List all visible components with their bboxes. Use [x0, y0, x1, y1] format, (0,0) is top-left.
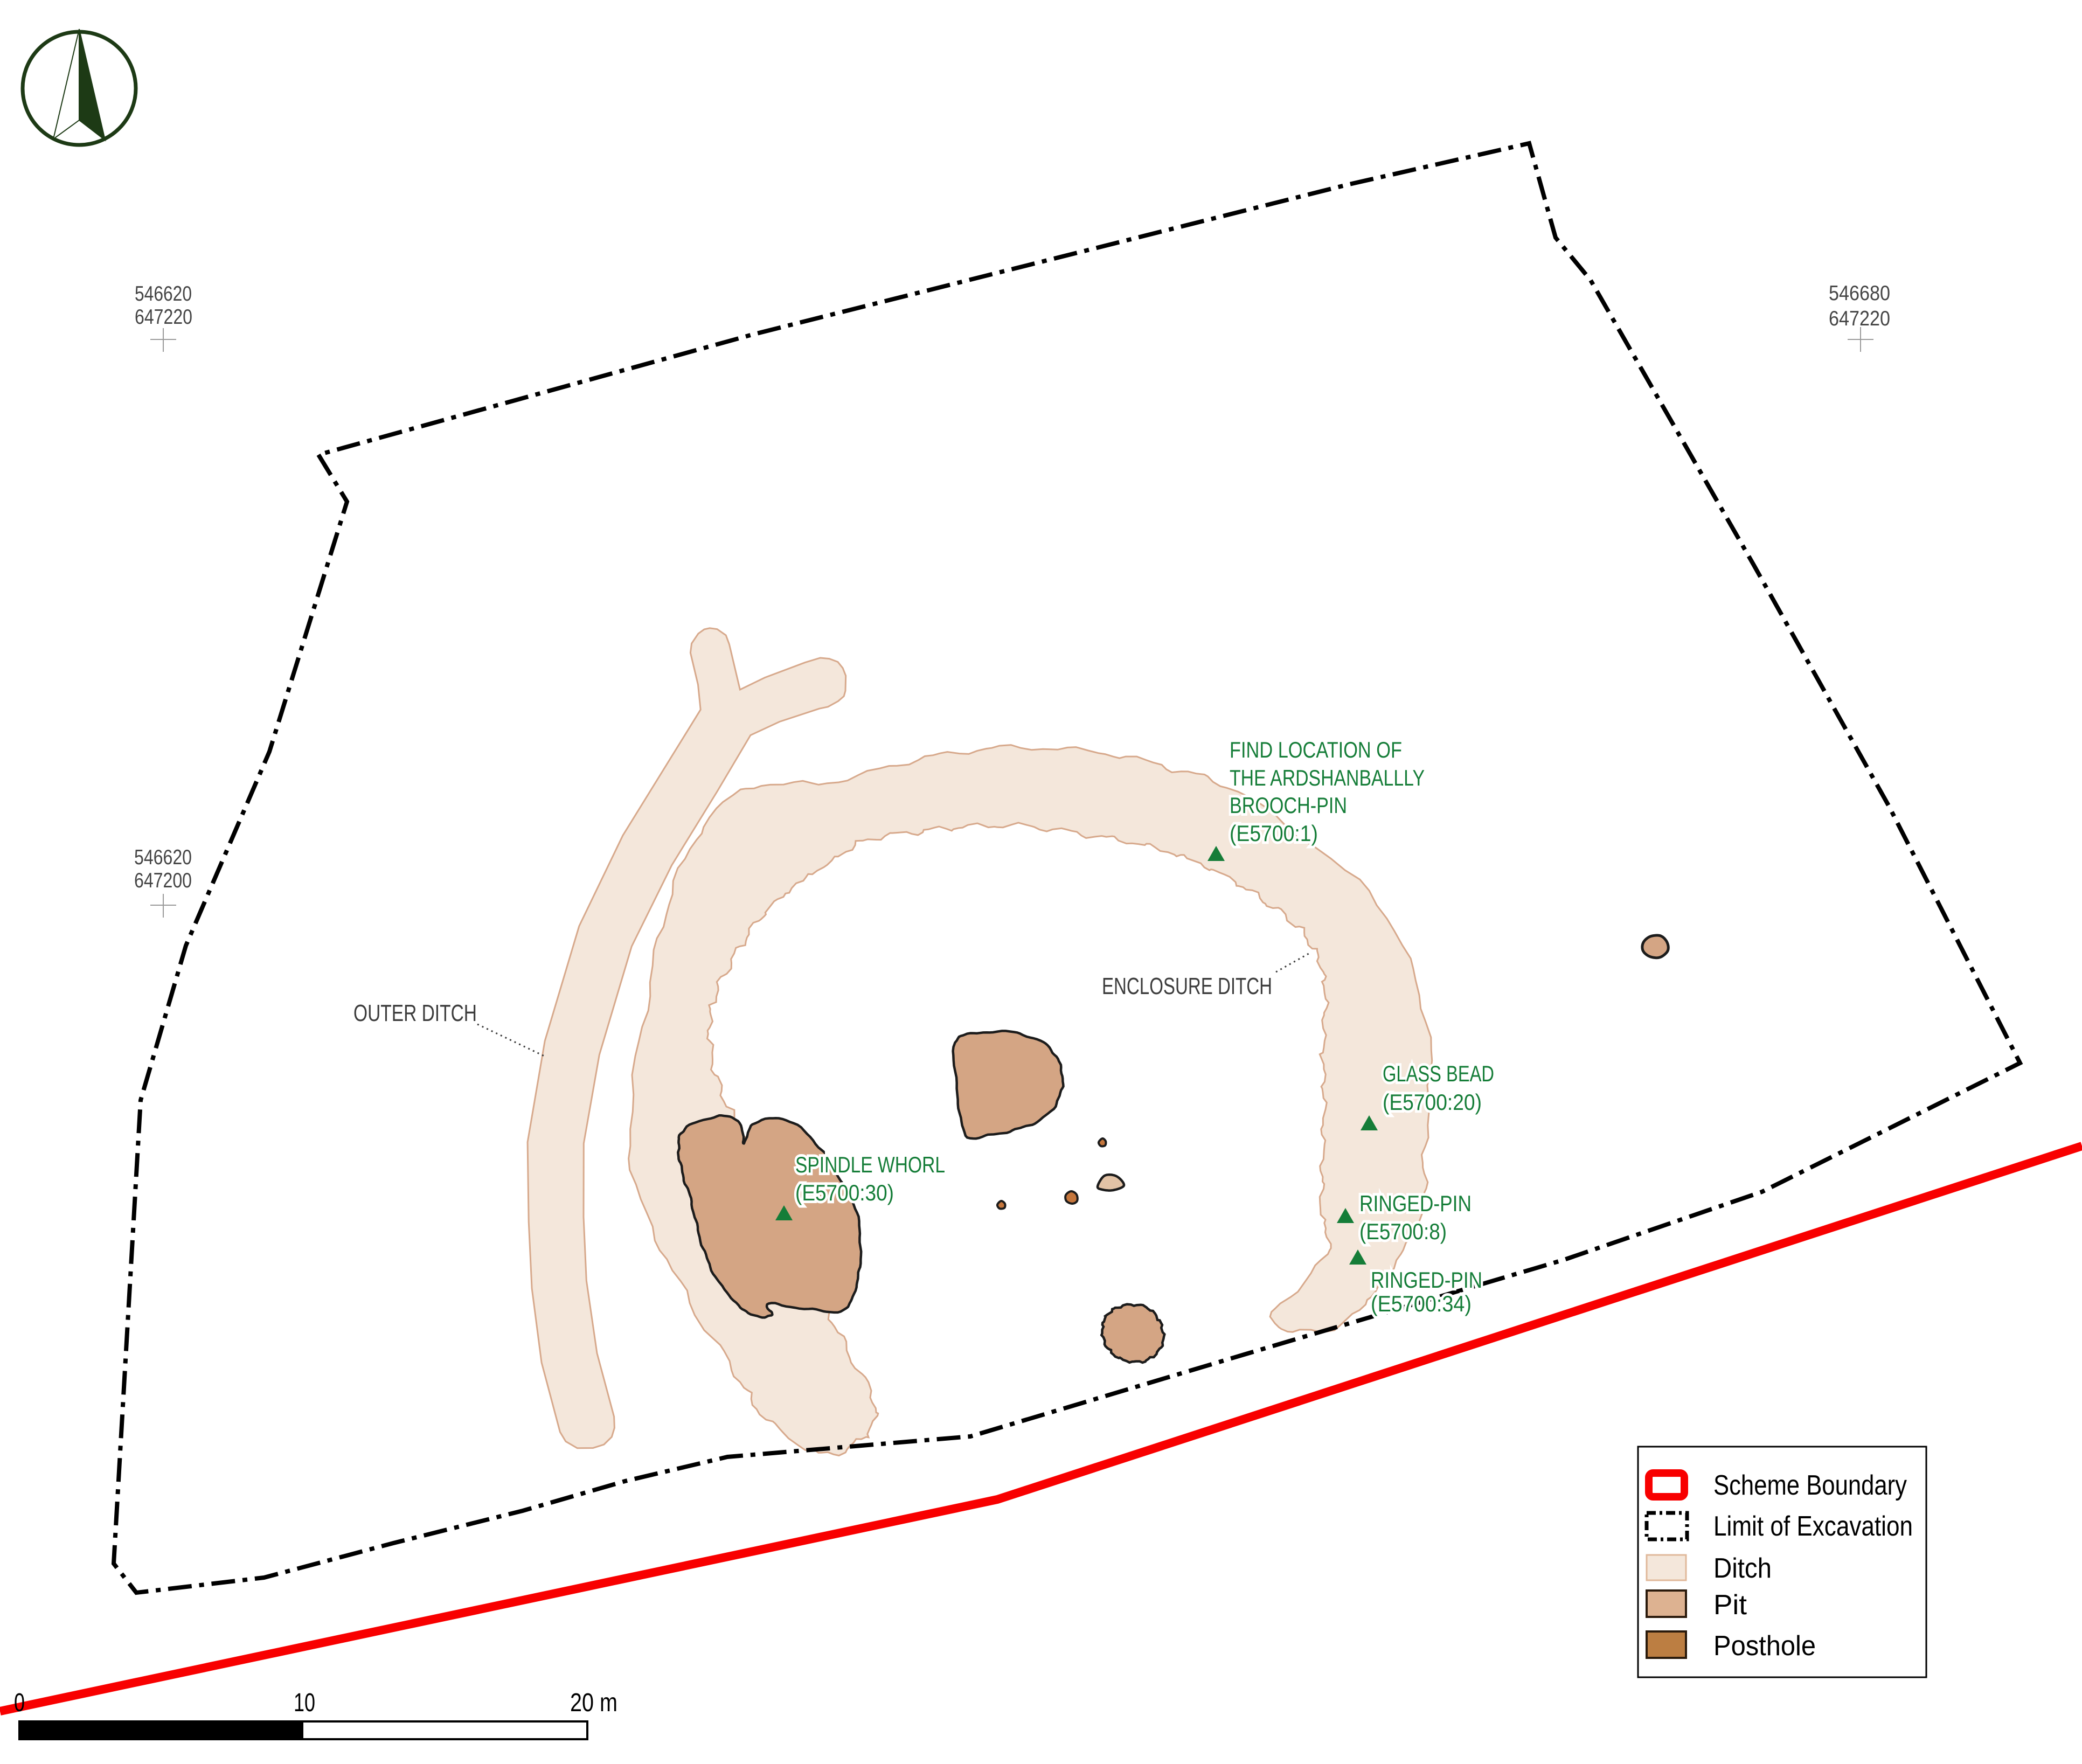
svg-text:(E5700:30): (E5700:30) [795, 1180, 894, 1205]
svg-text:647220: 647220 [1829, 307, 1890, 330]
svg-text:GLASS BEAD: GLASS BEAD [1383, 1061, 1494, 1086]
svg-text:FIND LOCATION OF: FIND LOCATION OF [1230, 737, 1402, 762]
svg-text:Scheme Boundary: Scheme Boundary [1713, 1470, 1907, 1501]
svg-text:Limit of Excavation: Limit of Excavation [1713, 1511, 1913, 1542]
svg-text:Ditch: Ditch [1713, 1553, 1772, 1584]
svg-text:SPINDLE WHORL: SPINDLE WHORL [795, 1152, 945, 1177]
svg-text:Posthole: Posthole [1713, 1630, 1816, 1662]
svg-text:ENCLOSURE DITCH: ENCLOSURE DITCH [1102, 973, 1272, 999]
svg-text:546620: 546620 [135, 282, 192, 305]
svg-text:546680: 546680 [1829, 282, 1890, 305]
svg-text:Pit: Pit [1713, 1589, 1747, 1621]
svg-text:0: 0 [14, 1689, 25, 1717]
svg-text:546620: 546620 [134, 846, 192, 869]
svg-text:647200: 647200 [134, 869, 192, 892]
svg-text:OUTER DITCH: OUTER DITCH [353, 1000, 477, 1026]
svg-text:RINGED-PIN: RINGED-PIN [1371, 1267, 1482, 1293]
svg-text:(E5700:34): (E5700:34) [1371, 1291, 1472, 1316]
svg-text:20 m: 20 m [570, 1689, 617, 1717]
svg-text:RINGED-PIN: RINGED-PIN [1359, 1191, 1472, 1216]
svg-text:(E5700:8): (E5700:8) [1359, 1219, 1447, 1244]
svg-text:(E5700:20): (E5700:20) [1383, 1089, 1482, 1115]
svg-text:(E5700:1): (E5700:1) [1230, 821, 1318, 846]
svg-text:BROOCH-PIN: BROOCH-PIN [1230, 793, 1347, 818]
svg-text:10: 10 [294, 1689, 315, 1717]
svg-text:THE ARDSHANBALLLY: THE ARDSHANBALLLY [1230, 765, 1425, 790]
svg-text:647220: 647220 [135, 305, 192, 329]
